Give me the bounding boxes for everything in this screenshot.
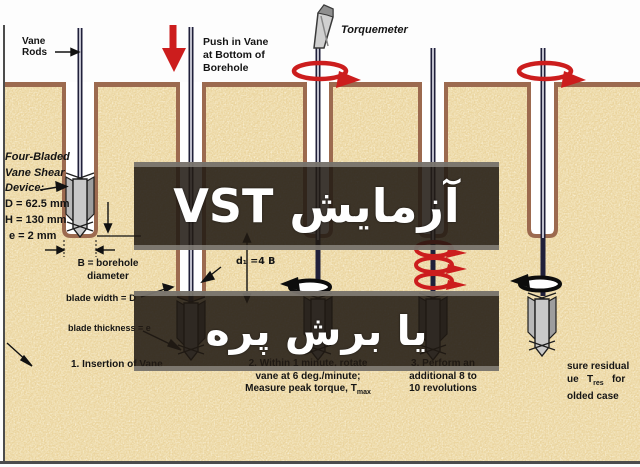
- borehole-diameter-label: B = borehole diameter: [72, 258, 144, 283]
- banner-bottom-text: یا برش پره: [134, 296, 499, 366]
- d1-dimension-label: d₁ =4 B: [236, 256, 275, 267]
- push-in-vane-label: Push in Vane at Bottom of Borehole: [203, 36, 268, 75]
- title-banner-bottom: یا برش پره: [134, 291, 499, 371]
- torquemeter-label: Torquemeter: [341, 24, 408, 36]
- banner-top-text: آزمایش VST: [134, 167, 499, 245]
- vst-slide: Vane Rods Push in Vane at Bottom of Bore…: [0, 0, 640, 467]
- device-name-label: Four-Bladed Vane Shear Device:: [5, 150, 70, 197]
- step4-caption-clipped: sure residual ue Tres for olded case: [567, 360, 629, 403]
- title-banner-top: آزمایش VST: [134, 162, 499, 250]
- device-dimensions-label: D = 62.5 mm H = 130 mm e = 2 mm: [5, 196, 70, 244]
- vane-rods-label: Vane Rods: [22, 36, 47, 58]
- blade-width-label: blade width = D: [66, 293, 136, 304]
